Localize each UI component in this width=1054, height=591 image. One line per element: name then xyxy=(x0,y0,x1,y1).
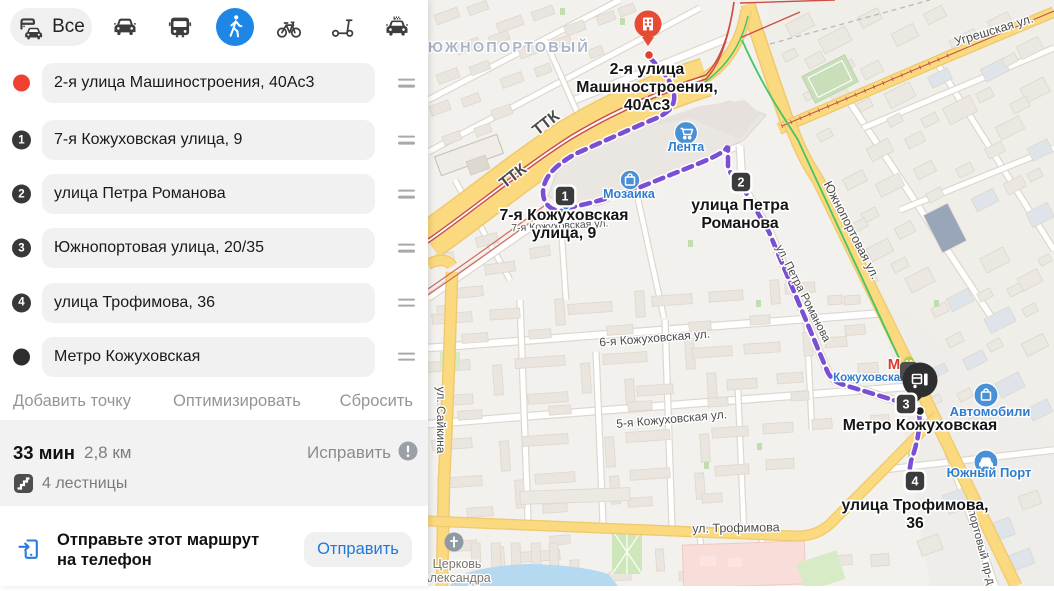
svg-text:ЮЖНОПОРТОВЫЙ: ЮЖНОПОРТОВЫЙ xyxy=(428,38,590,56)
svg-text:1: 1 xyxy=(562,190,569,204)
svg-text:36: 36 xyxy=(906,515,924,532)
svg-text:3: 3 xyxy=(903,398,910,412)
svg-text:4: 4 xyxy=(912,475,919,489)
svg-text:Кожуховская: Кожуховская xyxy=(833,372,907,384)
svg-text:40Ас3: 40Ас3 xyxy=(624,97,671,114)
svg-text:Метро Кожуховская: Метро Кожуховская xyxy=(843,417,997,434)
svg-text:Александра: Александра xyxy=(428,571,491,585)
svg-text:улица Трофимова,: улица Трофимова, xyxy=(841,497,988,514)
svg-text:2: 2 xyxy=(738,176,745,190)
svg-text:Романова: Романова xyxy=(701,215,779,232)
svg-text:Мозаика: Мозаика xyxy=(603,187,656,201)
svg-text:2-я улица: 2-я улица xyxy=(610,61,685,78)
svg-text:ул. Трофимова: ул. Трофимова xyxy=(692,520,780,536)
svg-text:улица Петра: улица Петра xyxy=(691,197,789,214)
svg-text:М: М xyxy=(888,356,901,373)
svg-text:Лента: Лента xyxy=(668,140,705,154)
svg-text:Южный Порт: Южный Порт xyxy=(947,465,1032,480)
svg-text:Машиностроения,: Машиностроения, xyxy=(576,79,717,96)
svg-text:Церковь: Церковь xyxy=(433,557,482,571)
svg-text:улица, 9: улица, 9 xyxy=(532,225,597,242)
svg-text:ул. Сайкина: ул. Сайкина xyxy=(434,387,448,454)
